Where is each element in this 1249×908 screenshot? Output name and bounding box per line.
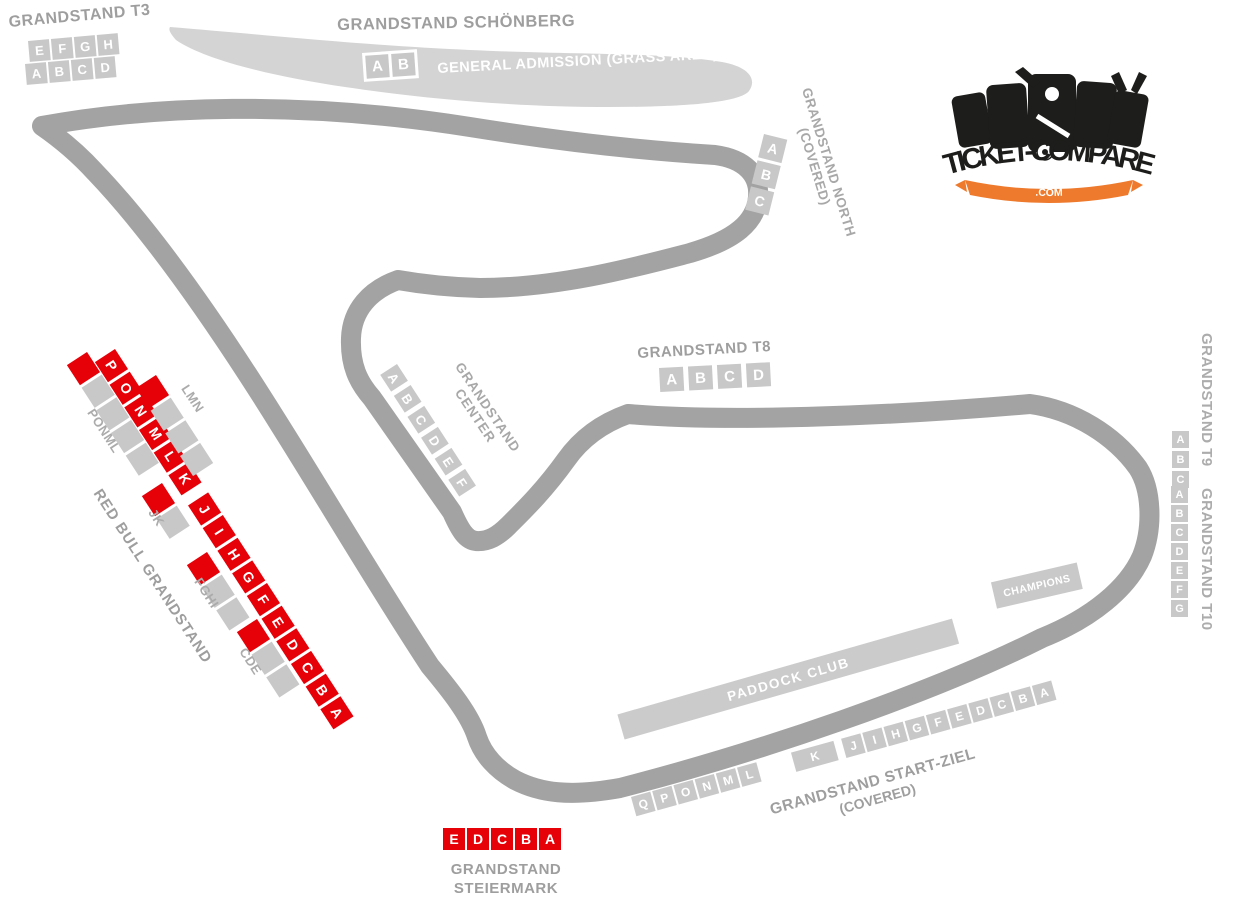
fan-head <box>1045 87 1059 101</box>
steiermark-label-line1: GRANDSTAND <box>438 861 574 880</box>
steiermark-label-line2: STEIERMARK <box>438 880 574 899</box>
seat-block-A[interactable]: A <box>25 62 48 85</box>
seat-block-H[interactable]: H <box>97 33 120 56</box>
circuit-seating-map: GRANDSTAND T3 EFGH ABCD GRANDSTAND SCHÖN… <box>0 0 1249 908</box>
grandstand-t9-label: GRANDSTAND T9 <box>1198 333 1215 467</box>
seat-block-A[interactable]: A <box>365 54 390 79</box>
seat-block-B[interactable]: B <box>1171 505 1188 522</box>
grandstand-steiermark-blocks: EDCBA <box>443 828 561 850</box>
seat-block-E[interactable]: E <box>28 39 51 62</box>
seat-block-E[interactable]: E <box>1171 562 1188 579</box>
seat-block-B[interactable]: B <box>688 365 713 390</box>
seat-block-G[interactable]: G <box>74 35 97 58</box>
seat-block-A[interactable]: A <box>539 828 561 850</box>
grandstand-t10-label: GRANDSTAND T10 <box>1198 488 1215 631</box>
seat-block-B[interactable]: B <box>515 828 537 850</box>
seat-block-C[interactable]: C <box>71 58 94 81</box>
seat-block-B[interactable]: B <box>48 60 71 83</box>
grandstand-t9-blocks: ABC <box>1172 431 1189 488</box>
seat-block-A[interactable]: A <box>659 367 684 392</box>
seat-block-C[interactable]: C <box>717 364 742 389</box>
seat-block-G[interactable]: G <box>1171 600 1188 617</box>
seat-block-A[interactable]: A <box>1171 486 1188 503</box>
seat-block-E[interactable]: E <box>443 828 465 850</box>
seat-block-F[interactable]: F <box>1171 581 1188 598</box>
grandstand-schoenberg-blocks: AB <box>362 49 419 82</box>
seat-block-D[interactable]: D <box>94 56 117 79</box>
ticket-compare-logo: TICKET-COMPARE .COM <box>933 64 1165 214</box>
svg-text:.COM: .COM <box>1035 187 1063 199</box>
grandstand-steiermark-label: GRANDSTAND STEIERMARK <box>438 861 574 899</box>
seat-block-B[interactable]: B <box>391 52 416 77</box>
seat-block-F[interactable]: F <box>51 37 74 60</box>
seat-block-C[interactable]: C <box>491 828 513 850</box>
seat-block-D[interactable]: D <box>467 828 489 850</box>
seat-block-D[interactable]: D <box>746 362 771 387</box>
grandstand-t10-blocks: ABCDEFG <box>1171 486 1188 617</box>
seat-block-B[interactable]: B <box>1172 451 1189 468</box>
logo-tld: .COM <box>1035 187 1063 199</box>
seat-block-A[interactable]: A <box>1172 431 1189 448</box>
seat-block-D[interactable]: D <box>1171 543 1188 560</box>
seat-block-C[interactable]: C <box>1171 524 1188 541</box>
